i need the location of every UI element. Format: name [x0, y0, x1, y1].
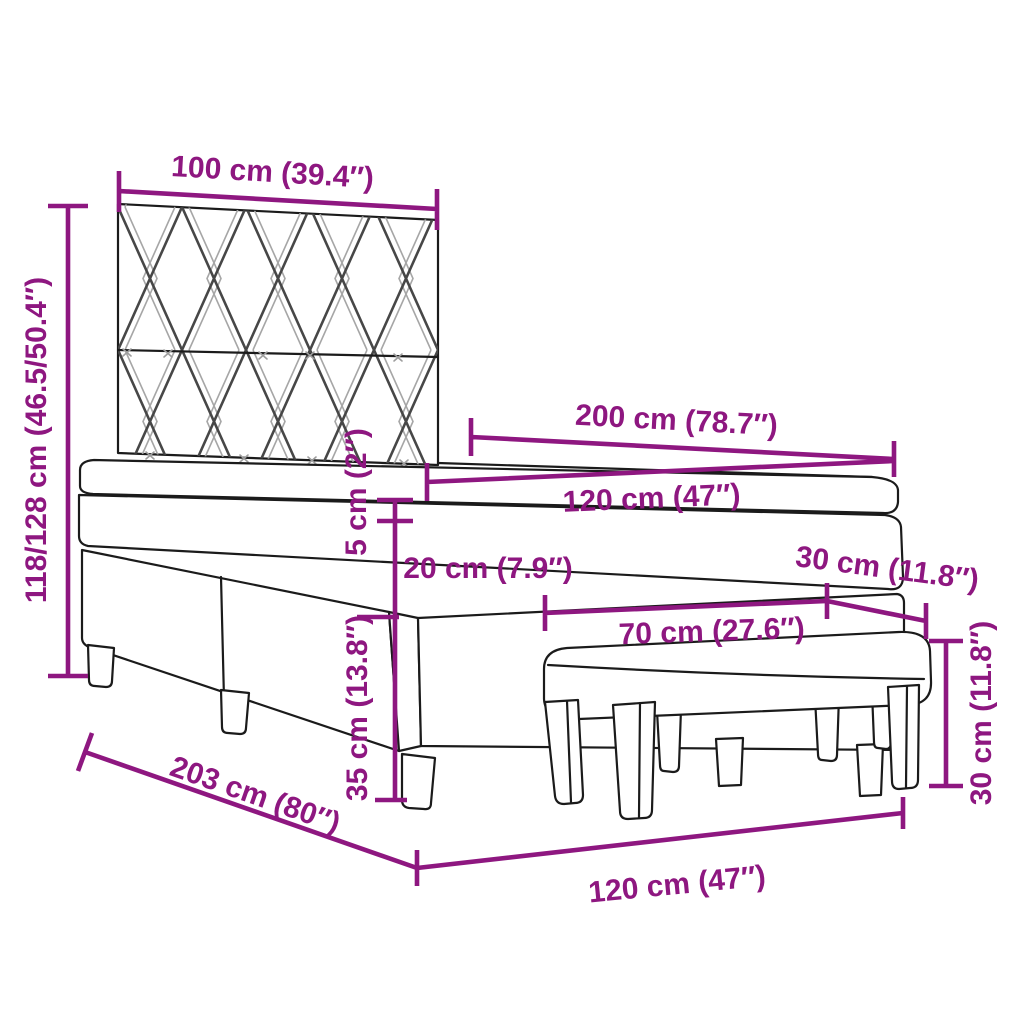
bed-leg	[716, 738, 743, 786]
bench-leg	[888, 685, 919, 789]
dim-label: 120 cm (47″)	[587, 860, 767, 910]
dim-line	[929, 641, 963, 786]
dim-label: 203 cm (80″)	[166, 750, 345, 840]
bed-dimension-drawing: 100 cm (39.4″) 118/128 cm (46.5/50.4″) 2…	[0, 0, 1024, 1024]
bench-leg	[545, 700, 583, 804]
dim-bed-width: 120 cm (47″)	[417, 797, 903, 909]
dim-label: 100 cm (39.4″)	[170, 150, 374, 195]
bed-leg	[857, 744, 883, 796]
dim-label: 200 cm (78.7″)	[574, 399, 778, 443]
dimension-diagram: 100 cm (39.4″) 118/128 cm (46.5/50.4″) 2…	[0, 0, 1024, 1024]
bed	[79, 204, 904, 809]
dim-label: 70 cm (27.6″)	[618, 612, 805, 651]
dim-headboard-height: 118/128 cm (46.5/50.4″)	[20, 206, 88, 676]
dim-line	[417, 797, 903, 868]
dim-label: 5 cm (2″)	[340, 428, 373, 556]
bench-leg	[613, 702, 655, 819]
dim-label: 30 cm (11.8″)	[965, 621, 998, 805]
bench-leg	[657, 709, 681, 772]
bed-leg	[88, 645, 114, 687]
bench-leg-edge	[639, 703, 640, 817]
headboard-pattern	[118, 204, 438, 465]
headboard-pattern-fill	[118, 204, 438, 465]
bench-leg-edge	[906, 686, 907, 787]
dim-bench-height: 30 cm (11.8″)	[929, 621, 998, 805]
dim-label: 35 cm (13.8″)	[341, 615, 374, 801]
bed-leg	[221, 690, 249, 734]
dim-label: 118/128 cm (46.5/50.4″)	[20, 277, 53, 603]
dim-label: 20 cm (7.9″)	[403, 552, 572, 585]
